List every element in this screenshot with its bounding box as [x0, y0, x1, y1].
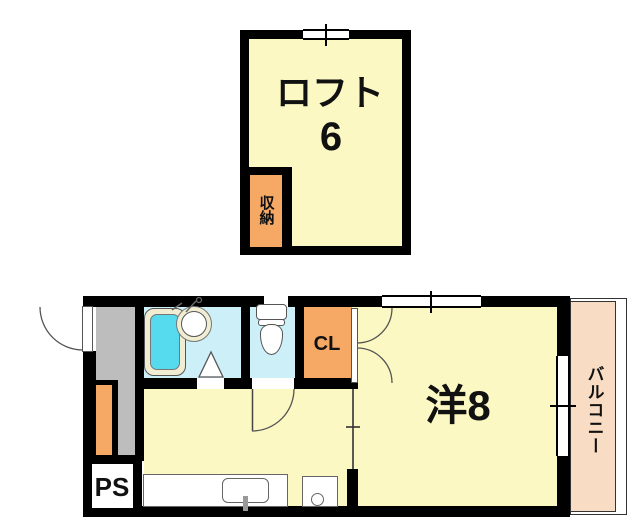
loft-size-label: 6 — [320, 117, 342, 157]
room-right-window — [556, 356, 570, 456]
stove-burner — [311, 493, 324, 506]
entry-hall-lower — [118, 382, 135, 458]
pipe-space-label: PS — [95, 474, 130, 500]
bottom-wall — [83, 506, 570, 517]
loft-label: ロフト — [276, 75, 384, 111]
wall-toilet-closet — [295, 301, 304, 389]
kitchen-faucet — [243, 496, 248, 511]
closet-label: CL — [314, 334, 341, 354]
western-room-label: 洋8 — [425, 385, 490, 427]
closet-door — [351, 308, 358, 383]
entrance-door-arc — [40, 307, 83, 350]
toilet-tank — [256, 304, 287, 320]
wall-wet-south-1 — [135, 378, 197, 389]
wall-wet-south-3 — [294, 378, 358, 389]
loft-window — [303, 29, 349, 40]
storage-label: 収納 — [259, 195, 274, 225]
wall-wet-south-2 — [224, 378, 252, 389]
top-wall — [83, 296, 570, 307]
room-top-window — [382, 295, 481, 308]
shoe-cabinet — [94, 385, 112, 455]
left-wall — [83, 351, 96, 461]
bath-sink — [181, 311, 207, 337]
entry-hall — [96, 307, 135, 382]
entrance-door — [82, 306, 93, 352]
balcony-label: バルコニー — [586, 365, 603, 455]
wall-bath-toilet — [241, 301, 250, 389]
wall-kitchen-room — [347, 469, 358, 507]
floor-plan: ロフト 6 収納 バルコニー PS — [0, 0, 640, 524]
